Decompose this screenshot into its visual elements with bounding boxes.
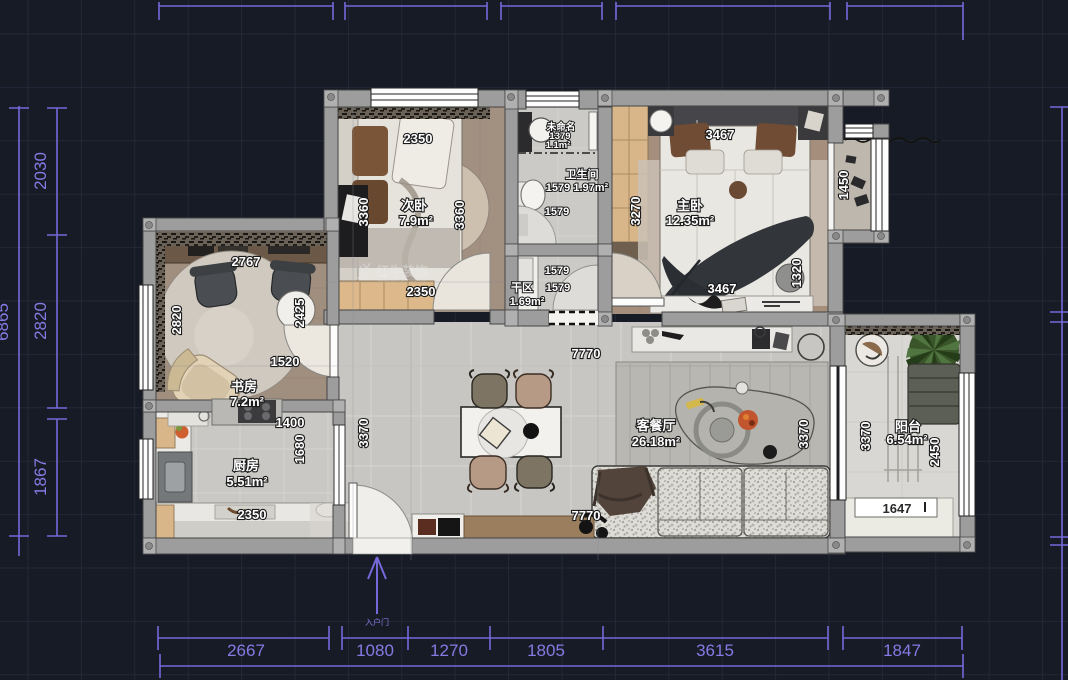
svg-text:1680: 1680	[292, 435, 307, 464]
svg-text:3467: 3467	[708, 281, 737, 296]
svg-text:3270: 3270	[628, 197, 643, 226]
svg-text:红牛装饰: 红牛装饰	[376, 264, 428, 279]
svg-text:入户门: 入户门	[365, 617, 389, 627]
svg-text:2425: 2425	[292, 299, 307, 328]
svg-text:1.1m²: 1.1m²	[546, 140, 571, 151]
svg-text:3370: 3370	[858, 422, 873, 451]
svg-text:1270: 1270	[430, 641, 468, 660]
svg-text:1450: 1450	[836, 171, 851, 200]
svg-text:客餐厅: 客餐厅	[636, 418, 675, 433]
svg-text:3370: 3370	[796, 420, 811, 449]
svg-text:6.54m²: 6.54m²	[886, 432, 928, 447]
svg-text:卫生间: 卫生间	[566, 167, 599, 181]
svg-text:1320: 1320	[789, 259, 804, 288]
svg-text:3360: 3360	[452, 201, 467, 230]
svg-text:1520: 1520	[271, 354, 300, 369]
svg-text:1400: 1400	[276, 415, 305, 430]
svg-text:1579: 1579	[545, 265, 569, 277]
svg-text:干区: 干区	[511, 281, 533, 294]
svg-text:1647: 1647	[883, 501, 912, 516]
svg-text:1080: 1080	[356, 641, 394, 660]
svg-text:次卧: 次卧	[401, 198, 427, 213]
svg-text:2820: 2820	[31, 302, 50, 340]
svg-text:主卧: 主卧	[677, 198, 703, 213]
svg-text:1847: 1847	[883, 641, 921, 660]
svg-text:7770: 7770	[572, 346, 601, 361]
svg-text:1579: 1579	[545, 206, 569, 218]
svg-text:1805: 1805	[527, 641, 565, 660]
svg-text:7.2m²: 7.2m²	[230, 394, 265, 409]
svg-text:3467: 3467	[706, 127, 735, 142]
svg-text:书房: 书房	[231, 379, 257, 394]
svg-text:7.9m²: 7.9m²	[399, 213, 434, 228]
svg-text:2767: 2767	[232, 254, 261, 269]
svg-text:HONG NIU DECORATION: HONG NIU DECORATION	[378, 278, 426, 283]
svg-text:2030: 2030	[31, 152, 50, 190]
svg-text:2350: 2350	[407, 284, 436, 299]
svg-text:5.51m²: 5.51m²	[226, 474, 268, 489]
svg-text:2820: 2820	[169, 306, 184, 335]
svg-text:2450: 2450	[927, 438, 942, 467]
svg-text:6865: 6865	[0, 303, 12, 341]
svg-text:2350: 2350	[238, 507, 267, 522]
svg-text:1.69m²: 1.69m²	[510, 296, 545, 308]
svg-text:2667: 2667	[227, 641, 265, 660]
svg-text:1867: 1867	[31, 458, 50, 496]
svg-text:7770: 7770	[572, 508, 601, 523]
svg-text:2350: 2350	[404, 131, 433, 146]
svg-text:12.35m²: 12.35m²	[666, 213, 715, 228]
svg-text:26.18m²: 26.18m²	[632, 434, 681, 449]
svg-text:3370: 3370	[356, 419, 371, 448]
svg-text:1579: 1579	[546, 282, 570, 294]
svg-text:3615: 3615	[696, 641, 734, 660]
svg-text:厨房: 厨房	[233, 458, 259, 473]
svg-text:3360: 3360	[356, 198, 371, 227]
svg-text:1579 1.97m²: 1579 1.97m²	[546, 182, 609, 194]
